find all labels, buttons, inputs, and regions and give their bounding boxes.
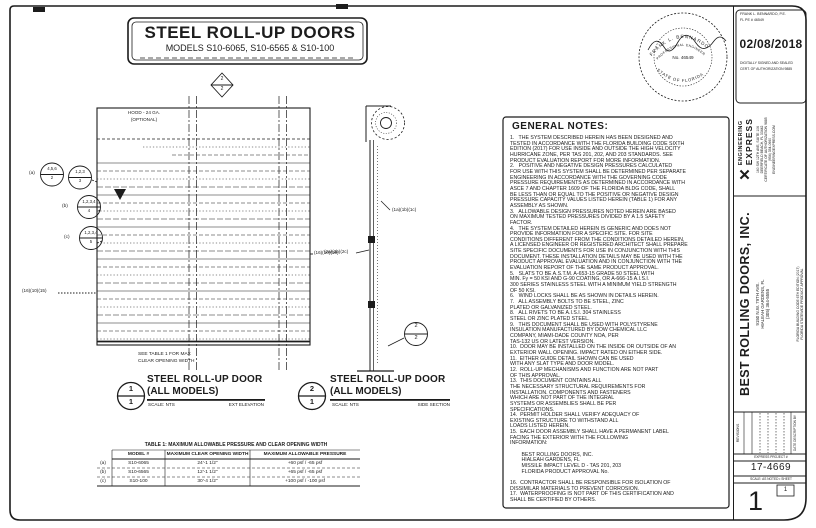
table-row-pressure: +65 psf / -65 psf	[250, 470, 360, 475]
revisions-label: REVISIONS	[736, 413, 745, 453]
page-subtitle: MODELS S10-6065, S10-6565 & S10-100	[136, 44, 364, 53]
callout-b-den: 4	[78, 209, 100, 214]
table1-header-model: MODEL #	[112, 452, 165, 457]
project-bar: EXPRESS PROJECT #	[736, 456, 806, 459]
section-right-refs: (1a)(1b)(1c)	[392, 208, 416, 213]
cut-marker-num: 2	[214, 77, 230, 82]
windlock-marker-icon	[114, 189, 126, 200]
table-row-model: S10-6565	[112, 470, 165, 475]
drawing1-bubble-num: 1	[124, 385, 138, 393]
signed-date: 02/08/2018	[738, 38, 804, 51]
callout-b-num: 1,2,3,4	[78, 200, 100, 205]
table-row-tag: (a)	[95, 461, 111, 466]
drawing2-bubble-den: 1	[305, 398, 319, 406]
pe-name: FRANK L. BENNARDO, P.E.	[740, 13, 802, 17]
callout-c-den: 5	[80, 240, 102, 245]
elevation-left-refs: (16)(10)(15)	[22, 289, 47, 294]
table-row-model: S10-100	[112, 479, 165, 484]
drawing1-view: EXT ELEVATION	[212, 403, 264, 408]
client-block: BEST ROLLING DOORS, INC. 9150 N.W. 79TH …	[737, 197, 805, 411]
signature-note: DIGITALLY SIGNED AND SEALED	[740, 62, 802, 66]
table-row-width: 12'-1 1/2"	[165, 470, 250, 475]
detail-bubble-num: 2	[409, 324, 423, 330]
sheet-number: 1	[748, 487, 763, 515]
hood-note: (OPTIONAL)	[108, 118, 180, 123]
table1-title: TABLE 1: MAXIMUM ALLOWABLE PRESSURE AND …	[112, 443, 360, 448]
table1-header-width: MAXIMUM CLEAR OPENING WIDTH	[165, 452, 250, 457]
svg-text:STATE OF FLORIDA: STATE OF FLORIDA	[656, 67, 705, 83]
drawing1-title2: (ALL MODELS)	[147, 387, 218, 398]
approval-note2: FLORIDA STATEWIDE PRODUCT APPROVAL	[800, 197, 804, 411]
hood-note: HOOD - 24 GA.	[108, 111, 180, 116]
authorization-note: CERT. OF AUTHORIZATION 9885	[740, 68, 802, 72]
seal-number: No. 46549	[672, 55, 694, 60]
revisions-columns: DATE DESCRIPTION BY	[793, 413, 805, 453]
see-table-note: SEE TABLE 1 FOR MAX	[138, 352, 191, 357]
table1-header-pressure: MAXIMUM ALLOWABLE PRESSURE	[250, 452, 360, 457]
callout-c-label: (c)	[64, 235, 70, 240]
drawing2-title: STEEL ROLL-UP DOOR	[330, 375, 445, 386]
table-row-width: 30'-4 1/2"	[165, 479, 250, 484]
section-left-refs: (2a)(2b)(2c)	[324, 250, 348, 255]
table-row-pressure: +60 psf / -65 psf	[250, 461, 360, 466]
callout-c-num: 1,2,3,4	[80, 231, 102, 236]
callout-a2-num: 1,2,3	[69, 170, 91, 175]
detail-bubble-den: 2	[409, 336, 423, 342]
table-row-tag: (b)	[95, 470, 111, 475]
guide-bracket-icon	[368, 236, 375, 243]
print-tick-icon	[336, 4, 348, 9]
callout-a2-den: 3	[69, 179, 91, 184]
engineering-express-logo-icon: ✕	[739, 168, 753, 181]
side-section-drawing	[356, 106, 428, 371]
drawing2-scale: SCALE: NTS	[332, 403, 359, 408]
drawing2-title2: (ALL MODELS)	[330, 387, 401, 398]
drawing1-title: STEEL ROLL-UP DOOR	[147, 375, 262, 386]
roll-coil-icon	[372, 107, 405, 140]
notes-body: 1. THE SYSTEM DESCRIBED HEREIN HAS BEEN …	[510, 136, 725, 504]
client-name: BEST ROLLING DOORS, INC.	[738, 197, 752, 411]
drawing-sheet: FRANK L. BENNARDO PROFESSIONAL ENGINEER …	[0, 0, 816, 528]
print-tick-icon	[33, 7, 45, 12]
table-row-width: 24'-1 1/2"	[165, 461, 250, 466]
sheet-bar: SCALE: AS NOTED • SHEET	[736, 478, 806, 481]
callout-a-label: (a)	[29, 171, 35, 176]
sheet-total: 1	[777, 487, 794, 493]
see-table-note: CLEAR OPENING WIDTH	[138, 359, 195, 364]
drawing2-view: SIDE SECTION	[398, 403, 450, 408]
notes-title: GENERAL NOTES:	[512, 122, 608, 133]
table-row-pressure: +100 psf / -100 psf	[250, 479, 360, 484]
callout-a1-den: 2	[41, 176, 63, 181]
pe-number: FL PE # 46549	[740, 19, 802, 23]
callout-a1-num: 4,5,6	[41, 167, 63, 172]
guide-bracket-icon	[368, 301, 375, 308]
firm-address: ENGINEERINGEXPRESS.COM	[772, 104, 776, 195]
drawing1-bubble-den: 1	[124, 398, 138, 406]
table-row-model: S10-6065	[112, 461, 165, 466]
firm-block: ✕ ENGINEERING EXPRESS 160 SW 12TH AVE, S…	[737, 104, 805, 195]
drawing2-bubble-num: 2	[305, 385, 319, 393]
project-number: 17-4669	[736, 463, 806, 474]
seal-state: STATE OF FLORIDA	[656, 67, 705, 83]
firm-name2: EXPRESS	[744, 118, 754, 165]
drawing1-scale: SCALE: NTS	[148, 403, 175, 408]
cut-marker-den: 2	[214, 87, 230, 92]
table-row-tag: (c)	[95, 479, 111, 484]
page-title: STEEL ROLL-UP DOORS	[136, 24, 364, 42]
callout-b-label: (b)	[62, 204, 68, 209]
